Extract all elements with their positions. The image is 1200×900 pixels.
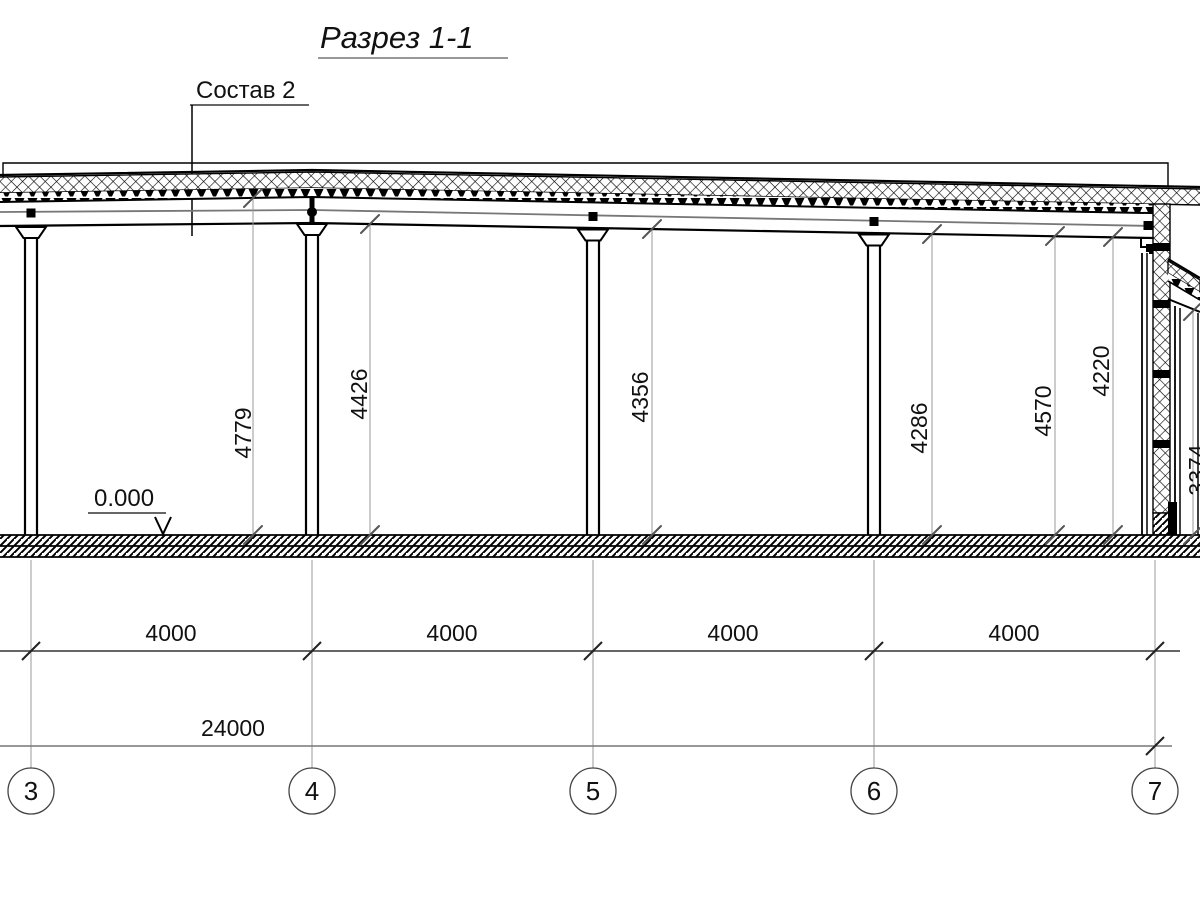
height-dim-label: 4779 (230, 407, 256, 458)
beam-joint-plate (27, 209, 36, 218)
bay-dim-label: 4000 (426, 620, 477, 646)
column-axis-6 (859, 235, 889, 536)
axis-number: 6 (867, 776, 881, 806)
roof-composition-callout: Состав 2 (190, 77, 309, 236)
height-dim-label: 4570 (1030, 385, 1056, 436)
axis-bubble-3: 3 (8, 768, 54, 814)
axis-number: 3 (24, 776, 38, 806)
wall-panel-joint (1153, 370, 1170, 378)
axis-bubble-5: 5 (570, 768, 616, 814)
axis-bubble-7: 7 (1132, 768, 1178, 814)
beam-joint-plate (589, 212, 598, 221)
height-dim-label: 4220 (1088, 345, 1114, 396)
ridge-joint (307, 198, 317, 223)
column-capital (859, 235, 889, 246)
height-dim-label: 4426 (346, 368, 372, 419)
ridge-joint-bolt (307, 207, 317, 217)
bay-dim-label: 4000 (988, 620, 1039, 646)
level-mark-text: 0.000 (94, 485, 154, 512)
axis-number: 7 (1148, 776, 1162, 806)
roof-beam-bottom-line (0, 223, 1153, 238)
bay-dimension-string: 4000 4000 4000 4000 (0, 620, 1180, 660)
vertical-dimensions: 4779 4426 4356 4286 4570 4220 3374 (230, 189, 1200, 544)
wall-panel-joint (1153, 300, 1170, 308)
wall-panel-joint (1153, 243, 1170, 251)
floor-slab (0, 535, 1200, 557)
level-mark-arrow (155, 517, 171, 534)
callout-text: Состав 2 (196, 77, 296, 104)
overall-dimension: 24000 (0, 715, 1172, 755)
floor-hatch-band (0, 546, 1200, 557)
roof-assembly (0, 163, 1200, 238)
column-capital (16, 227, 46, 238)
height-dim-label: 4286 (906, 402, 932, 453)
height-dim-label: 4356 (627, 371, 653, 422)
axis-bubble-6: 6 (851, 768, 897, 814)
drawing-title: Разрез 1-1 (318, 20, 508, 58)
column-axis-5 (578, 230, 608, 536)
height-dim-label: 3374 (1184, 444, 1200, 495)
section-drawing: Разрез 1-1 Состав 2 (0, 0, 1200, 900)
wall-panel-joint (1153, 440, 1170, 448)
column-axis-3 (16, 227, 46, 535)
beam-joint-plate (1144, 221, 1153, 230)
beam-joint-plate (870, 217, 879, 226)
column-capital (578, 230, 608, 241)
end-wall-axis-7 (1141, 204, 1177, 535)
axis-number: 5 (586, 776, 600, 806)
axis-bubble-4: 4 (289, 768, 335, 814)
overall-dim-label: 24000 (201, 715, 265, 741)
floor-hatch-band (0, 535, 1200, 546)
title-text: Разрез 1-1 (320, 20, 474, 55)
axis-number: 4 (305, 776, 319, 806)
axis-lines (31, 560, 1155, 768)
column-axis-4 (297, 224, 327, 535)
axis-bubbles: 3 4 5 6 7 (8, 768, 1178, 814)
section-drawing-sheet: Разрез 1-1 Состав 2 (0, 0, 1200, 900)
bay-dim-label: 4000 (145, 620, 196, 646)
column-capital (297, 224, 327, 235)
bay-dim-label: 4000 (707, 620, 758, 646)
wall-base-block (1153, 513, 1170, 535)
level-mark: 0.000 (88, 485, 171, 534)
